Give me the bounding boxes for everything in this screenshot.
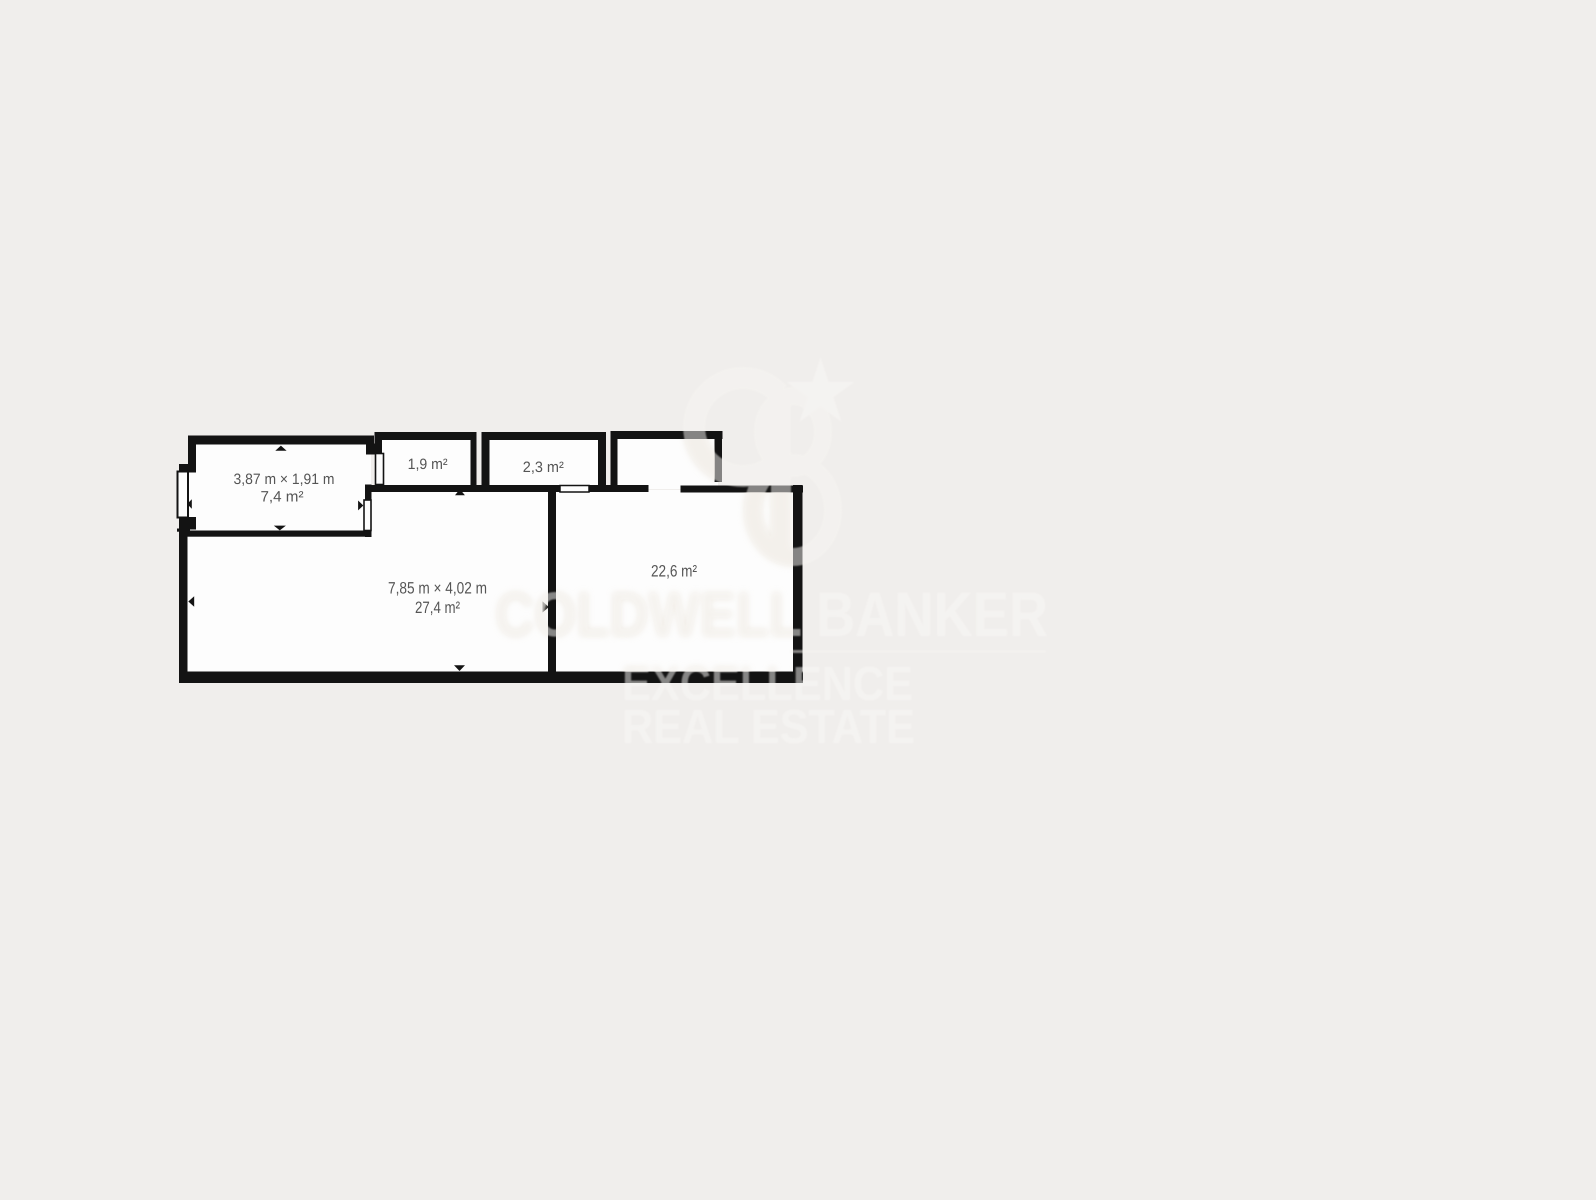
svg-text:REAL ESTATE: REAL ESTATE [622,701,915,754]
svg-text:22,6 m²: 22,6 m² [651,563,697,581]
svg-text:3,87 m × 1,91 m: 3,87 m × 1,91 m [234,471,335,488]
svg-text:2,3 m²: 2,3 m² [523,459,564,476]
svg-text:1,9 m²: 1,9 m² [408,456,448,473]
svg-text:27,4 m²: 27,4 m² [415,599,460,617]
svg-text:7,85 m × 4,02 m: 7,85 m × 4,02 m [388,580,487,598]
svg-text:COLDWELL BANKER: COLDWELL BANKER [495,580,1048,650]
svg-text:7,4 m²: 7,4 m² [261,489,304,506]
